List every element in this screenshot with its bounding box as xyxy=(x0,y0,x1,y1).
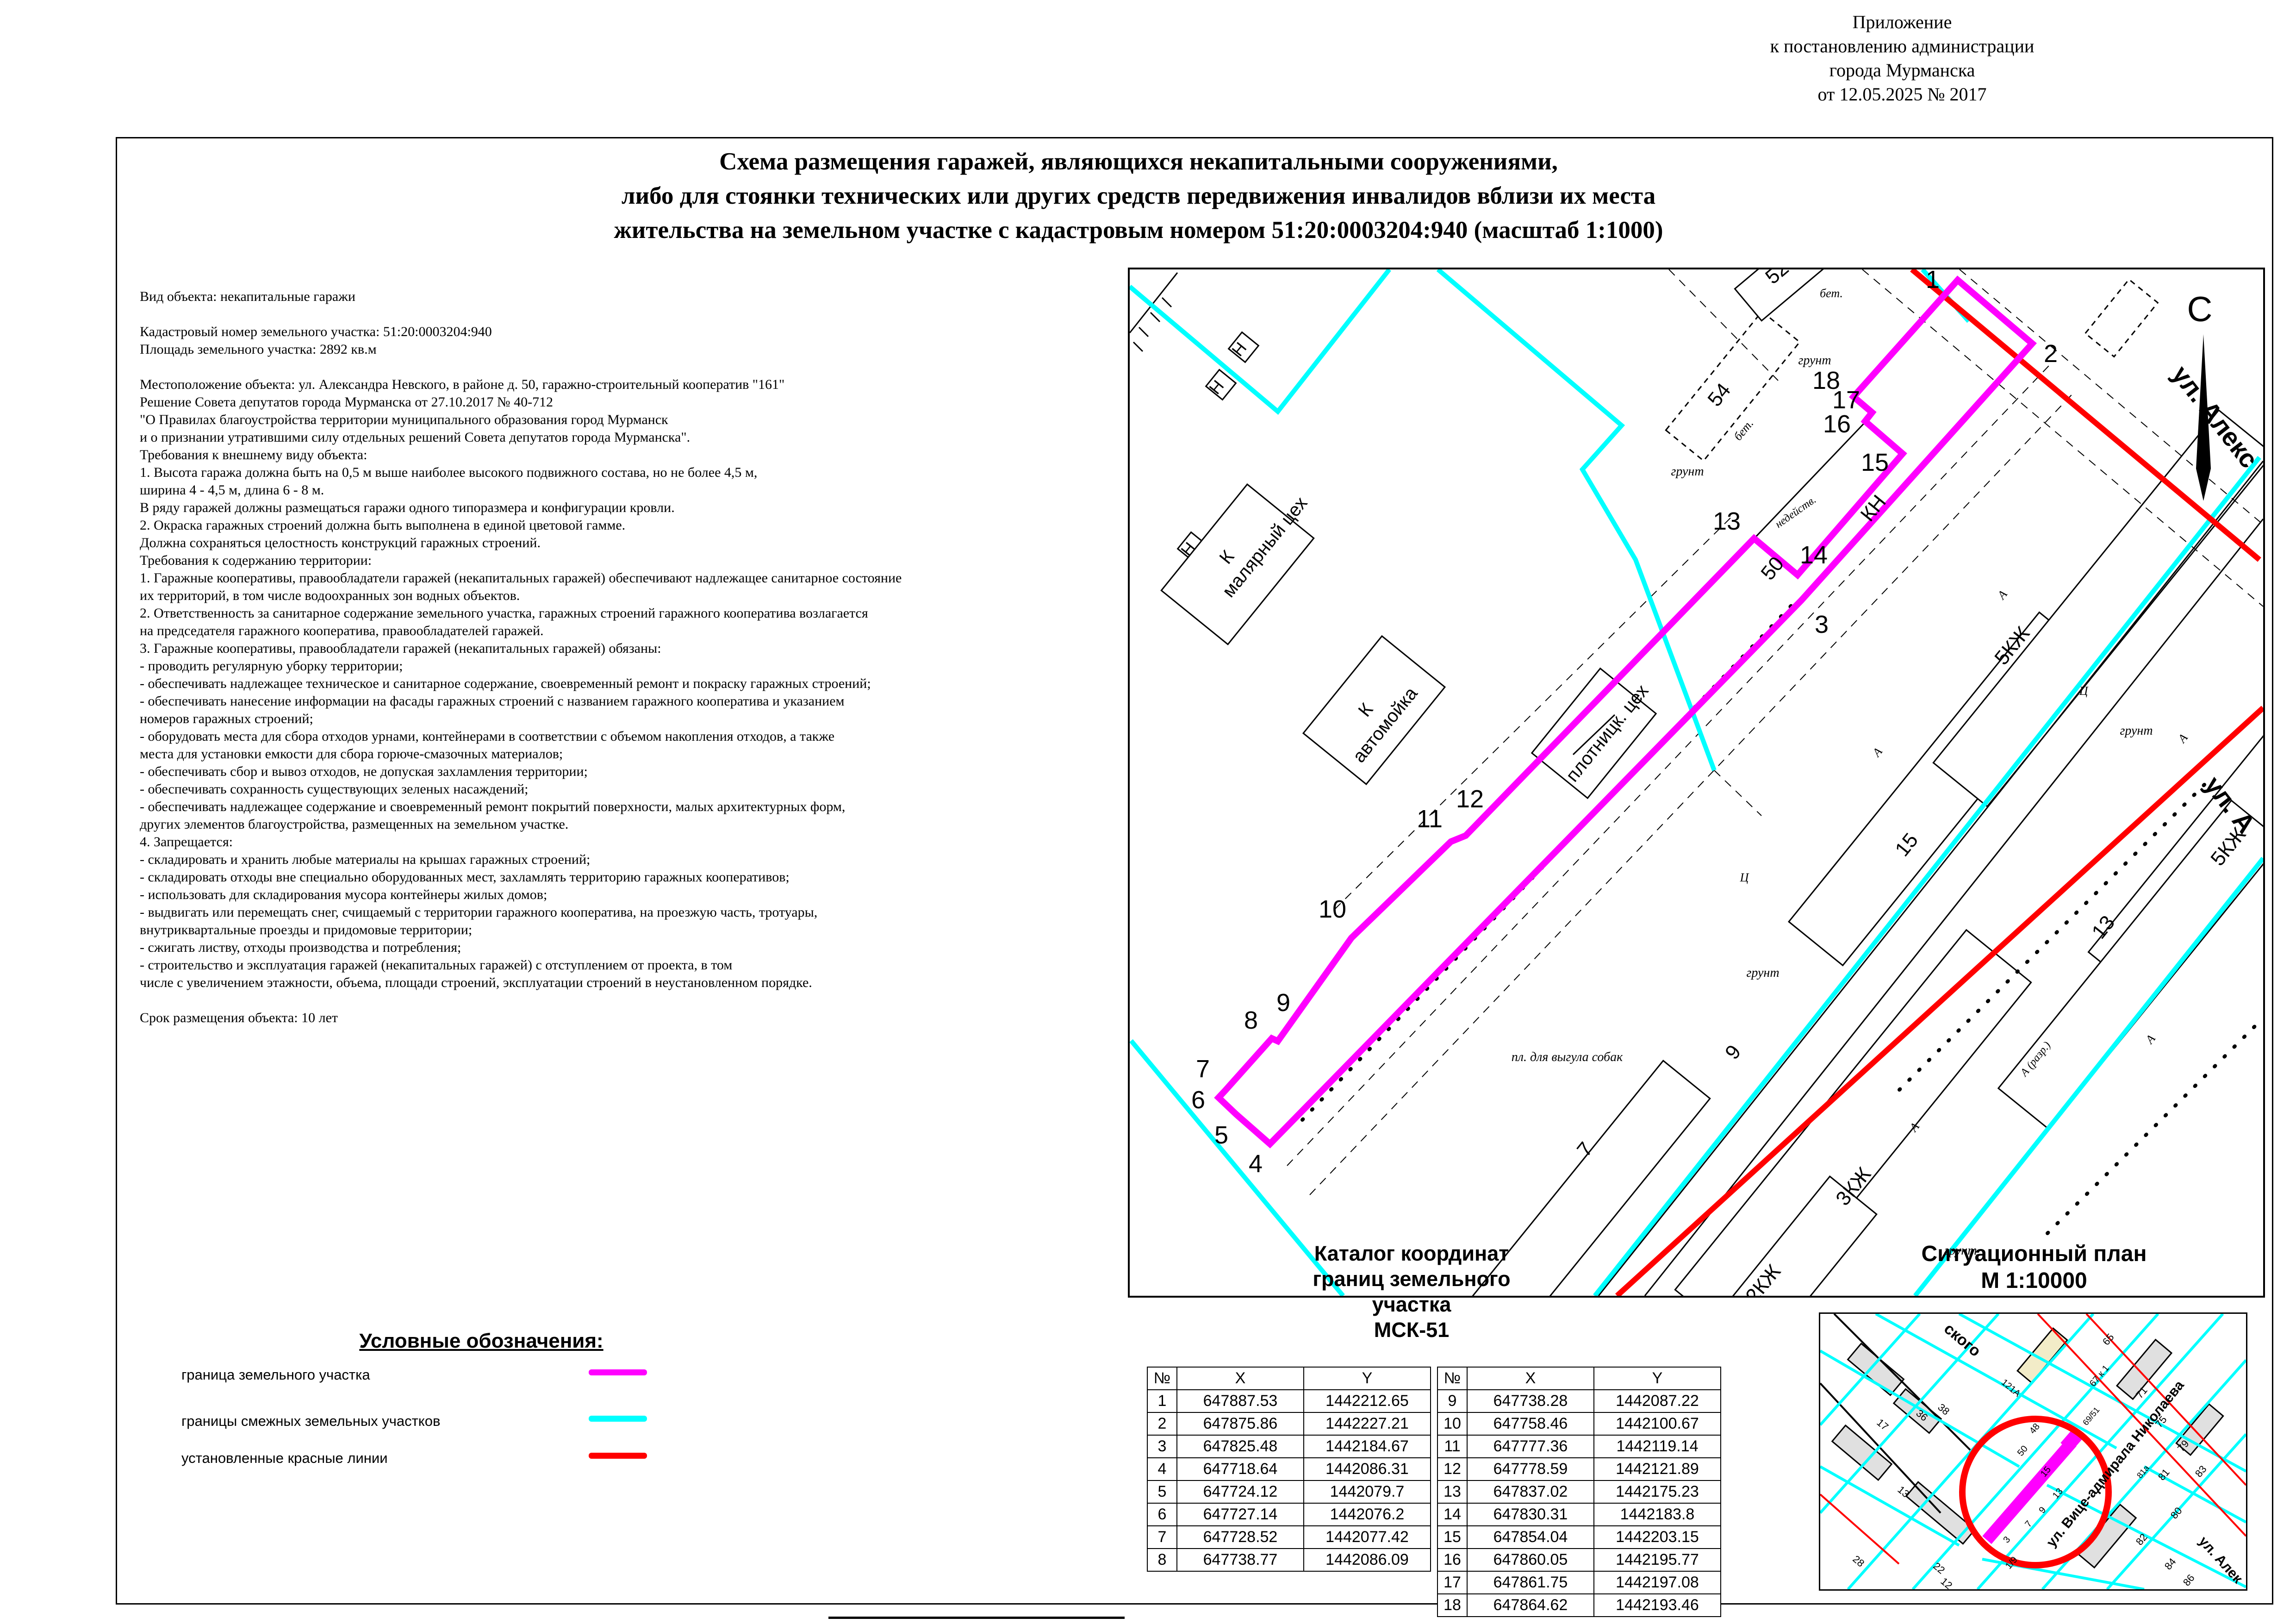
table-row: 17647861.751442197.08 xyxy=(1437,1571,1721,1594)
dashed-road-line xyxy=(1714,770,1761,816)
map-label: А xyxy=(1994,587,2010,602)
vertex-number: 13 xyxy=(1713,507,1741,535)
vertex-number: 5 xyxy=(1214,1121,1228,1149)
map-label: А xyxy=(2175,731,2190,746)
map-label: 84 xyxy=(2162,1556,2178,1572)
boundary-black-line xyxy=(1130,273,1177,333)
legend-swatch-red-line xyxy=(589,1453,647,1459)
table-row: 11647777.361442119.14 xyxy=(1437,1435,1721,1458)
building xyxy=(1848,1343,1904,1395)
site-plan-svg: СНННКмалярный цехКавтомойкаплотницк. цех… xyxy=(1130,269,2263,1296)
document-page: Приложение к постановлению администрации… xyxy=(0,0,2296,1624)
table-row: 15647854.041442203.15 xyxy=(1437,1526,1721,1549)
legend-swatch-magenta-line xyxy=(589,1369,647,1375)
map-label: 22 xyxy=(1931,1560,1947,1576)
table-row: 6647727.141442076.2 xyxy=(1147,1503,1431,1526)
map-label: 50 xyxy=(1756,552,1788,584)
table-row: 13647837.021442175.23 xyxy=(1437,1480,1721,1503)
map-label: Ц xyxy=(2079,684,2089,698)
boundary-black-line xyxy=(1133,342,1143,351)
map-label: 3 xyxy=(2001,1535,2012,1545)
vertex-number: 2 xyxy=(2044,340,2058,368)
coordinate-table-1: №XY 1647887.531442212.652647875.86144222… xyxy=(1147,1367,1431,1572)
table-header-row: №XY xyxy=(1147,1367,1431,1390)
table-header-row: №XY xyxy=(1437,1367,1721,1390)
boundary-black-line xyxy=(1139,327,1148,337)
coordinate-table-2: №XY 9647738.281442087.2210647758.4614421… xyxy=(1437,1367,1721,1617)
table-row: 5647724.121442079.7 xyxy=(1147,1480,1431,1503)
column-header: Y xyxy=(1594,1367,1721,1390)
map-label: 28 xyxy=(1850,1553,1867,1569)
column-header: Y xyxy=(1304,1367,1431,1390)
table-row: 16647860.051442195.77 xyxy=(1437,1549,1721,1571)
map-label: ул. Алек xyxy=(2196,1534,2246,1587)
vertex-number: 10 xyxy=(1319,895,1346,923)
boundary-black-line xyxy=(1151,312,1160,322)
vertex-number: 4 xyxy=(1249,1150,1263,1178)
map-label: 38 xyxy=(1935,1401,1952,1418)
column-header: № xyxy=(1147,1367,1177,1390)
building xyxy=(2085,280,2158,357)
column-header: X xyxy=(1177,1367,1304,1390)
vertex-number: 9 xyxy=(1276,989,1290,1017)
vertex-number: 3 xyxy=(1815,611,1829,638)
vertex-number: 7 xyxy=(1196,1055,1210,1083)
map-label: 67 к 1 xyxy=(2088,1363,2111,1389)
document-title: Схема размещения гаражей, являющихся нек… xyxy=(296,144,1981,247)
map-label: грунт xyxy=(1671,464,1704,479)
table-row: 14647830.311442183.8 xyxy=(1437,1503,1721,1526)
table-row: 3647825.481442184.67 xyxy=(1147,1435,1431,1458)
site-plan-map: СНННКмалярный цехКавтомойкаплотницк. цех… xyxy=(1128,268,2265,1298)
situation-plan-title: Ситуационный план М 1:10000 xyxy=(1830,1241,2238,1294)
adjacent-parcel-line xyxy=(1915,858,2263,1296)
map-label: С xyxy=(2187,290,2213,329)
map-label: 50 xyxy=(2016,1444,2030,1458)
map-label: бет. xyxy=(1820,287,1843,300)
building xyxy=(1933,410,2263,806)
appendix-header: Приложение к постановлению администрации… xyxy=(1546,10,2259,106)
map-label: КН xyxy=(1856,491,1891,525)
boundary-black-line xyxy=(1162,298,1171,307)
vertex-number: 8 xyxy=(1244,1006,1258,1034)
legend-swatch-cyan-line xyxy=(589,1416,647,1422)
building xyxy=(1832,1425,1892,1480)
map-label: 65 xyxy=(2100,1331,2116,1348)
column-header: X xyxy=(1467,1367,1594,1390)
map-label: грунт xyxy=(1798,353,1831,368)
table-row: 18647864.621442193.46 xyxy=(1437,1594,1721,1617)
building xyxy=(1894,1389,1941,1433)
legend-item-adjacent-boundaries: границы смежных земельных участков xyxy=(181,1413,644,1430)
table-row: 7647728.521442077.42 xyxy=(1147,1526,1431,1549)
table-row: 8647738.771442086.09 xyxy=(1147,1549,1431,1571)
vertex-number: 11 xyxy=(1417,805,1443,833)
object-info-text: Вид объекта: некапитальные гаражи Кадаст… xyxy=(140,288,1121,1027)
vertex-number: 18 xyxy=(1812,367,1840,394)
table-row: 10647758.461442100.67 xyxy=(1437,1412,1721,1435)
map-label: 81а xyxy=(2135,1463,2151,1480)
map-label: А xyxy=(1869,745,1885,760)
map-label: 69/51 xyxy=(2081,1405,2101,1427)
footer-line xyxy=(828,1617,1125,1619)
column-header: № xyxy=(1437,1367,1467,1390)
adjacent-parcel-line xyxy=(1438,269,1714,770)
map-label: 17 xyxy=(1874,1417,1891,1433)
situation-plan-map: скогоул. Вице-адмирала Николаеваул. Алек… xyxy=(1819,1312,2247,1591)
situation-plan-svg: скогоул. Вице-адмирала Николаеваул. Алек… xyxy=(1820,1314,2246,1589)
map-label: пл. для выгула собак xyxy=(1512,1050,1623,1064)
map-label: 9 xyxy=(1721,1041,1745,1064)
table-row: 12647778.591442121.89 xyxy=(1437,1458,1721,1480)
adjacent-parcel-line xyxy=(1130,269,1389,412)
vertex-number: 1 xyxy=(1926,269,1940,294)
table-row: 2647875.861442227.21 xyxy=(1147,1412,1431,1435)
map-label: грунт xyxy=(2120,724,2153,738)
legend-item-parcel-boundary: граница земельного участка xyxy=(181,1367,644,1383)
map-label: грунт xyxy=(1746,966,1779,980)
legend-title: Условные обозначения: xyxy=(259,1330,703,1353)
vertex-number: 16 xyxy=(1823,410,1851,438)
map-label: 86 xyxy=(2181,1572,2197,1588)
vertex-number: 14 xyxy=(1800,541,1828,569)
table-row: 9647738.281442087.22 xyxy=(1437,1390,1721,1412)
map-label: 48 xyxy=(2028,1422,2042,1436)
table-row: 4647718.641442086.31 xyxy=(1147,1458,1431,1480)
vertex-number: 15 xyxy=(1861,449,1889,476)
map-label: А xyxy=(2142,1032,2158,1047)
vertex-number: 6 xyxy=(1191,1086,1205,1114)
table-row: 1647887.531442212.65 xyxy=(1147,1390,1431,1412)
vertex-number: 12 xyxy=(1456,785,1484,813)
coordinate-catalog-title: Каталог координат границ земельного учас… xyxy=(1213,1241,1611,1343)
legend-item-red-lines: установленные красные линии xyxy=(181,1450,644,1467)
map-label: 12 xyxy=(1938,1575,1954,1589)
map-label: Ц xyxy=(1740,871,1749,884)
